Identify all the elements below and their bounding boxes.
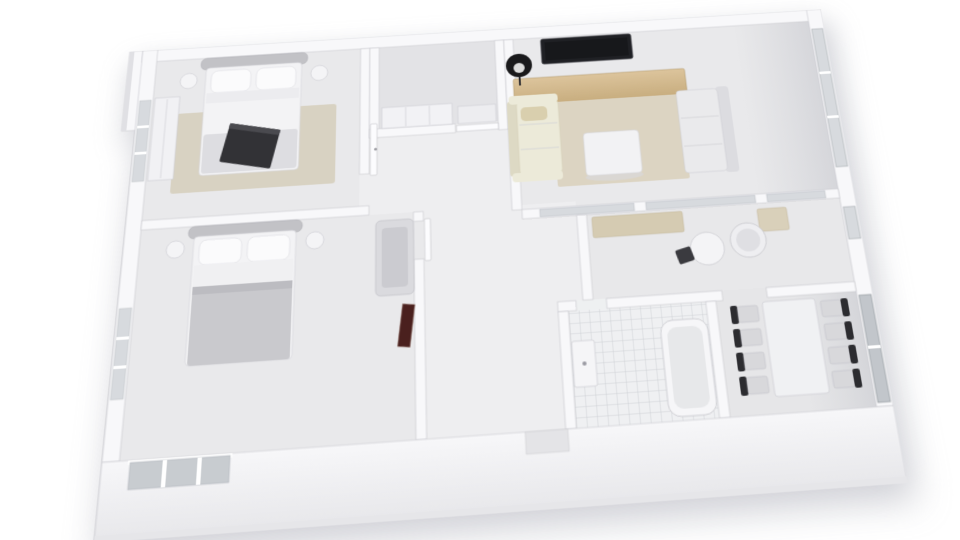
bed2-pillow-left [198,238,242,266]
door-gap-bathroom [576,299,607,311]
storage-cabinet [458,104,497,124]
kitchen-counter-small [757,207,790,231]
bed2-pillow-right [247,234,290,262]
floor-hall-upper [369,129,512,215]
wall-bedroom1-east [359,48,369,174]
tan-pillow [520,106,547,121]
floorplan-svg [72,9,908,540]
floorplan-scene [0,0,960,540]
building [78,9,907,540]
floorplan-3d-model [72,9,908,540]
wall-bath-north-a [558,301,577,312]
storage-wardrobe [382,103,453,128]
bedroom2-door [424,218,431,260]
bed1-pillow-right [256,66,296,90]
entrance-recess [525,429,569,454]
cream-sofa [507,93,564,182]
door-gap-bedroom2 [414,221,424,260]
coffee-table [583,130,643,176]
door-gap-bedroom1 [359,174,369,207]
armchair-seat [382,227,408,288]
wall-bedroom2-east-a [413,211,423,221]
bed1-pillow-left [210,69,251,93]
